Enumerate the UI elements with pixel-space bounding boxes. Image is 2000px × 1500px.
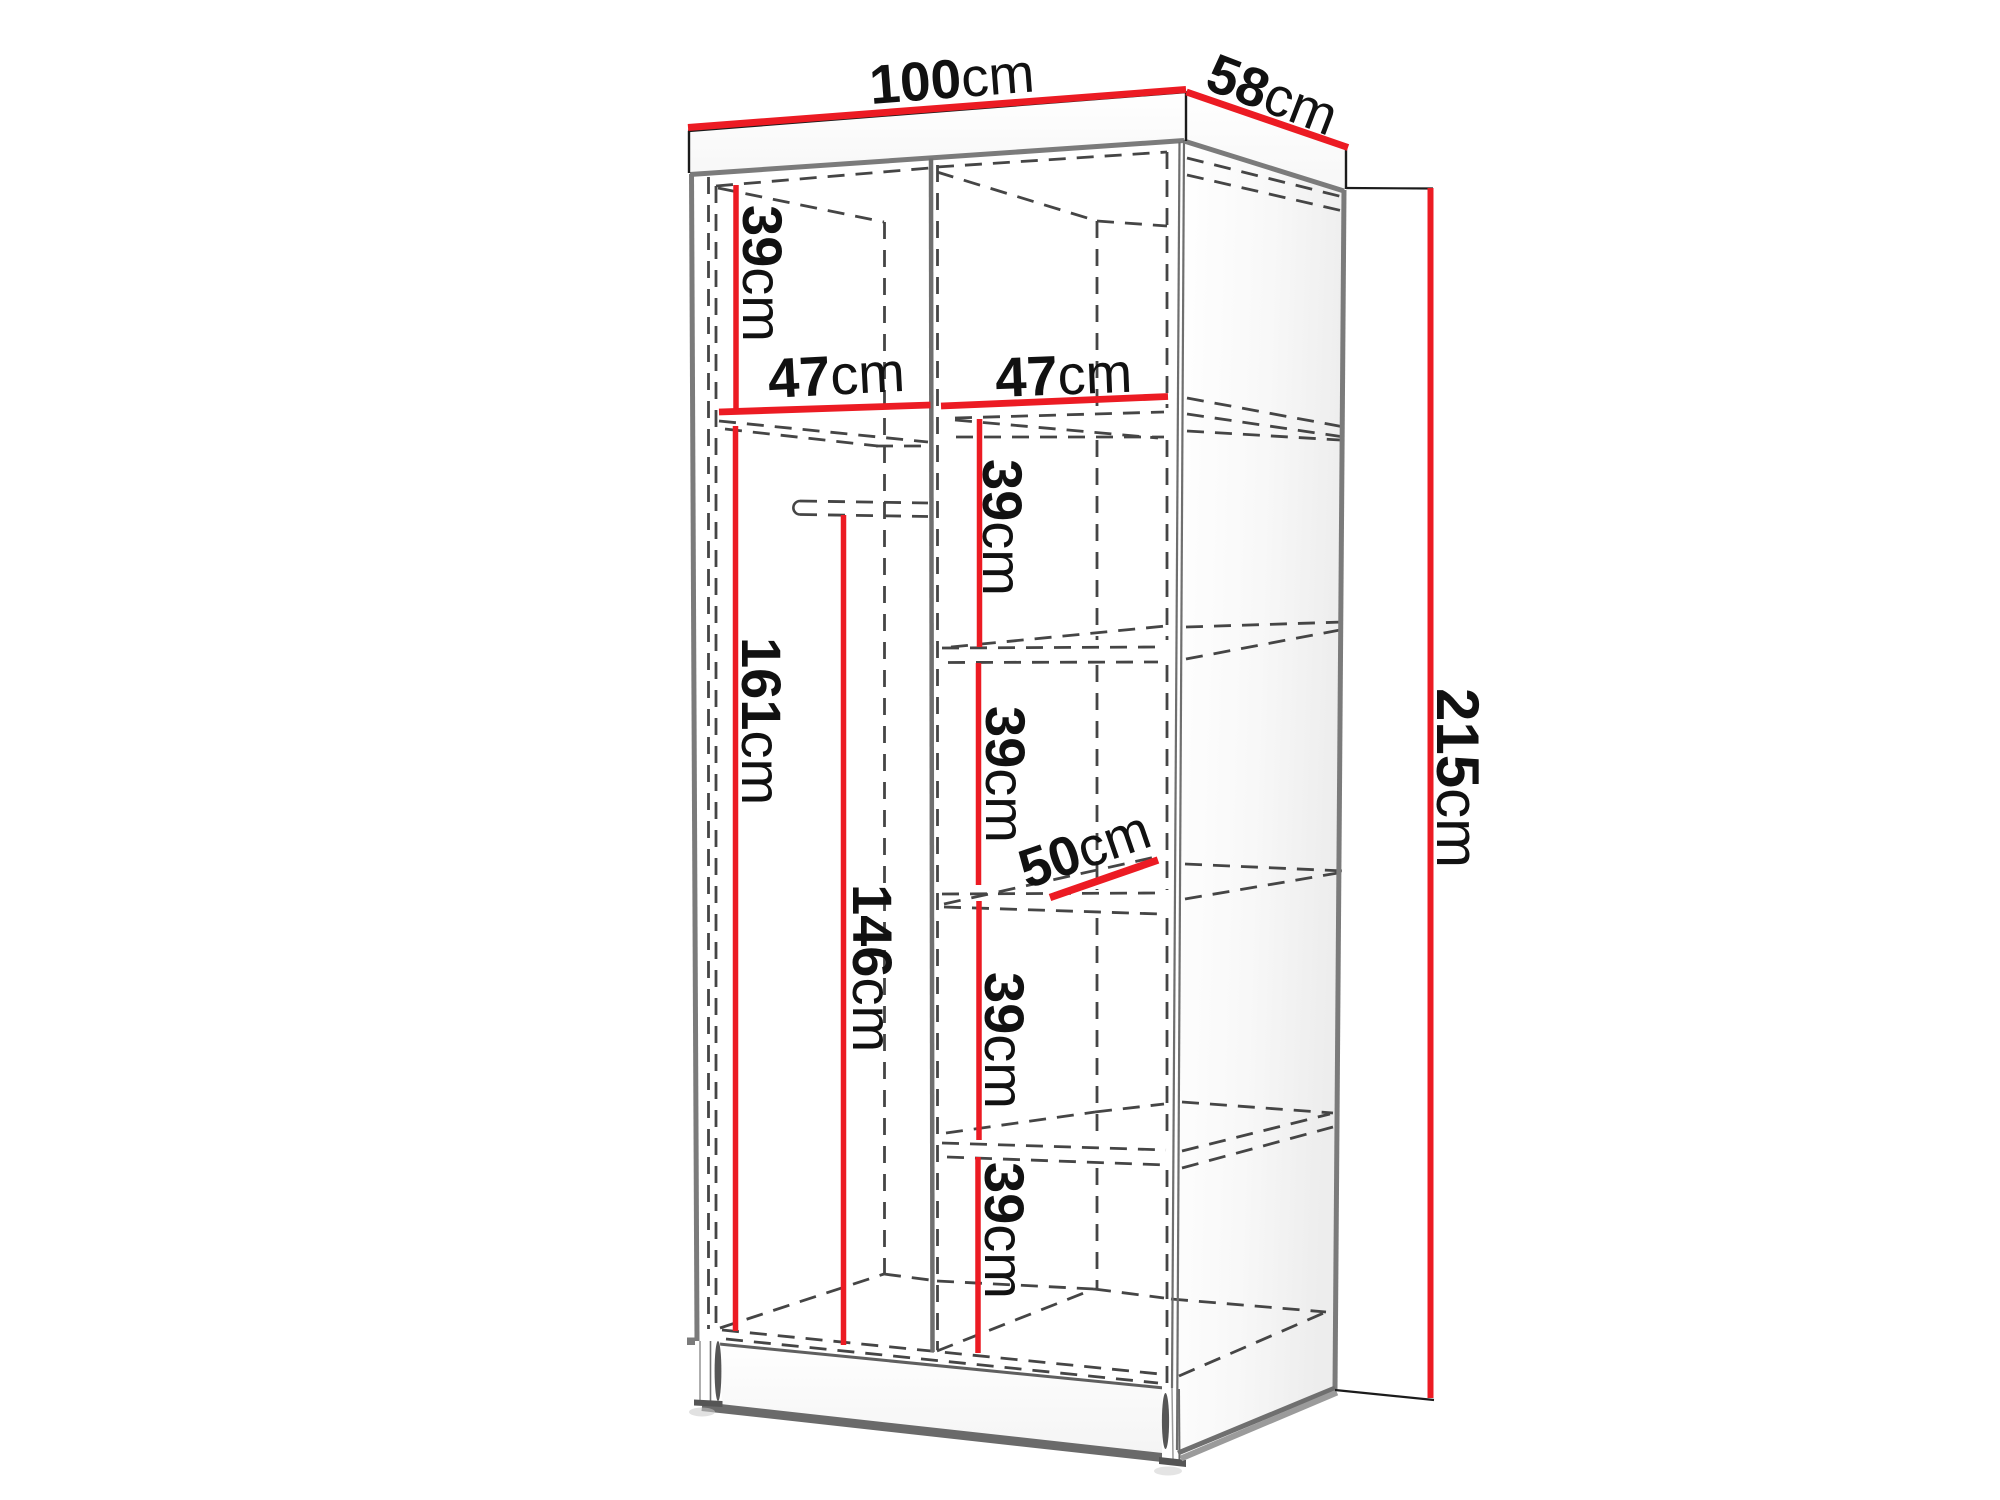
svg-text:215cm: 215cm [1424,688,1491,868]
svg-text:146cm: 146cm [841,884,904,1052]
svg-text:39cm: 39cm [973,972,1036,1109]
svg-text:47cm: 47cm [766,340,906,410]
svg-text:39cm: 39cm [973,1162,1036,1299]
svg-text:100cm: 100cm [867,41,1036,115]
svg-text:39cm: 39cm [974,706,1037,843]
svg-text:161cm: 161cm [730,637,793,805]
svg-text:39cm: 39cm [731,205,794,342]
svg-text:39cm: 39cm [971,459,1034,596]
svg-text:47cm: 47cm [994,341,1133,409]
